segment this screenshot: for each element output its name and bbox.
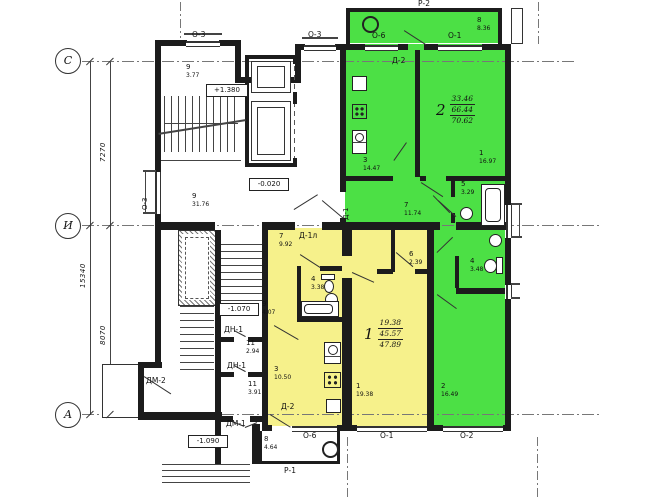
elevation-mid: -1.070 [219, 303, 259, 316]
area-full: 70.62 [450, 116, 475, 126]
dimension-8070: 8070 [99, 295, 107, 345]
room-area: 3.77 [186, 72, 199, 79]
wall [221, 337, 234, 342]
room-number: 5 [461, 181, 474, 189]
elevation-value: +1.380 [214, 86, 240, 94]
window-sill [519, 205, 520, 238]
wall [482, 44, 506, 50]
partition [455, 256, 459, 288]
room-tag-vestibule2: 11 3.91 [248, 381, 261, 396]
room-area: 9.92 [279, 241, 292, 248]
window-o6-top [365, 45, 398, 51]
axis-line-top-left [180, 2, 181, 38]
room-number: 7 [279, 233, 292, 241]
window-o3-left [155, 172, 161, 214]
wall [293, 158, 297, 167]
elevation-lobby: -0.020 [249, 178, 289, 191]
elevator-shaft-wall [245, 55, 297, 59]
label-o6: О-6 [303, 432, 316, 440]
label-o3: О-3 [308, 31, 321, 39]
partition-spine [342, 230, 352, 256]
label-o3-rotated: О-3 [141, 180, 150, 210]
room-number: 1 [356, 383, 373, 391]
wall [340, 44, 346, 192]
stove [324, 372, 341, 388]
room-tag-vestibule1: 11 2.94 [246, 340, 259, 355]
label-o1: О-1 [380, 432, 393, 440]
partition [415, 50, 420, 177]
room-number: 9 [262, 301, 275, 309]
label-dn1: ДН-1 [227, 362, 246, 370]
label-d1l: Д-1л [299, 232, 317, 240]
axis-label-c: С [64, 54, 72, 67]
dimension-15340: 15340 [79, 228, 87, 288]
room-tag-apt2-balcony: 8 8.36 [477, 17, 490, 32]
kitchen-sink-bowl [328, 345, 338, 355]
elevator-shaft-wall [245, 163, 297, 167]
window-right-1 [506, 205, 512, 238]
room-area: 14.47 [363, 165, 380, 172]
axis-line-bottom-1 [347, 437, 348, 497]
axis-bubble-c: С [55, 48, 81, 74]
room-area: 19.38 [356, 391, 373, 398]
apartment-areas: 33.46 66.44 70.62 [450, 94, 475, 126]
window-o1-top [438, 45, 482, 51]
apartment-number: 2 [436, 102, 446, 118]
area-living: 33.46 [450, 94, 475, 105]
room-tag-apt2-bath: 5 3.29 [461, 181, 474, 196]
wall-axis-i [155, 222, 215, 230]
room-tag-apt2-bedroom: 2 16.49 [441, 383, 458, 398]
room-number: 11 [248, 381, 261, 389]
wall [248, 372, 262, 377]
room-tag-apt1-closet: 6 2.39 [409, 251, 422, 266]
apartment-number: 1 [364, 326, 374, 342]
toilet-tank [496, 257, 503, 274]
elevation-value: -1.090 [197, 437, 220, 445]
elevation-value: -0.020 [258, 180, 281, 188]
wall [398, 44, 408, 50]
label-dn1: ДН-1 [224, 326, 243, 334]
washbasin [489, 234, 502, 247]
axis-label-a: А [64, 408, 72, 421]
room-area: 2.39 [409, 259, 422, 266]
stove [352, 104, 367, 119]
balcony-wall [498, 8, 502, 44]
toilet-bowl [324, 280, 334, 293]
bathtub-inner [485, 188, 501, 222]
wall [250, 416, 262, 422]
area-living: 19.38 [378, 318, 403, 329]
wall [293, 55, 297, 64]
kitchen-cabinet [326, 399, 341, 413]
room-tag-corridor: 9 31.76 [192, 193, 209, 208]
bathtub-inner [304, 304, 333, 314]
axis-line-bottom-2 [537, 437, 538, 497]
room-number: 11 [246, 340, 259, 348]
axis-bubble-i: И [55, 213, 81, 239]
axis-label-i: И [63, 219, 73, 232]
area-total: 66.44 [450, 105, 475, 116]
room-number: 8 [477, 17, 490, 25]
door-leaf-d1l [294, 194, 318, 210]
wall-apartment-divider [427, 230, 434, 426]
window-sill [511, 236, 522, 238]
partition [345, 176, 393, 181]
balcony-wall [346, 8, 350, 44]
room-tag-apt2-kitchen: 3 14.47 [363, 157, 380, 172]
dimension-line-outer [90, 62, 91, 415]
label-o1: О-1 [448, 32, 461, 40]
room-number: 9 [186, 64, 199, 72]
room-tag-stair-mid: 9 4.07 [262, 301, 275, 316]
kitchen-sink-divider [325, 356, 340, 357]
room-area: 3.48 [470, 266, 483, 273]
label-d2: Д-2 [392, 57, 405, 65]
label-dm2: ДМ-2 [146, 377, 166, 385]
fridge [352, 76, 367, 91]
label-o2: О-2 [460, 432, 473, 440]
room-area: 3.91 [248, 389, 261, 396]
window-sill [511, 297, 520, 299]
room-area: 16.97 [479, 158, 496, 165]
room-number: 8 [264, 436, 277, 444]
window-sill [511, 203, 522, 205]
staircase-low-steps [180, 306, 214, 374]
room-number: 2 [441, 383, 458, 391]
elevator-car-2-inner [257, 107, 285, 155]
wall [138, 412, 222, 420]
room-tag-apt2-hall: 7 11.74 [404, 202, 421, 217]
wall [155, 214, 161, 364]
room-number: 1 [479, 150, 496, 158]
toilet-bowl [484, 259, 497, 273]
room-number: 4 [470, 258, 483, 266]
area-full: 47.89 [378, 340, 403, 350]
room-tag-stair-top: 9 3.77 [186, 64, 199, 79]
partition [320, 266, 342, 271]
elevator-car-1-inner [257, 66, 285, 88]
axis-bubble-a: А [55, 402, 81, 428]
apartment-areas: 19.38 45.57 47.89 [378, 318, 403, 350]
apartment-2-summary: 2 33.46 66.44 70.62 [436, 94, 475, 126]
partition [377, 269, 393, 274]
room-number: 3 [363, 157, 380, 165]
wall [503, 425, 511, 431]
wall [235, 40, 241, 80]
window-o3-2 [304, 45, 336, 51]
dimension-line-inner [110, 62, 111, 415]
wall [221, 372, 234, 377]
exterior-pier [511, 8, 523, 44]
wall [215, 230, 221, 424]
room-tag-apt2-living: 1 16.97 [479, 150, 496, 165]
floor-plan: С И А 15340 7270 8070 [0, 0, 650, 500]
room-area: 4.07 [262, 309, 275, 316]
apartment-2-bedroom-area [434, 294, 505, 426]
partition [415, 269, 433, 274]
partition [297, 317, 342, 322]
wall [155, 40, 161, 172]
wall [427, 425, 443, 431]
kitchen-sink-divider [353, 142, 366, 143]
elevation-value: -1.070 [228, 305, 251, 313]
partition [451, 181, 455, 197]
room-number: 7 [404, 202, 421, 210]
room-tag-apt1-bath: 4 3.38 [311, 276, 324, 291]
room-tag-apt1-hall: 7 9.92 [279, 233, 292, 248]
door-leaf-d1 [322, 200, 344, 219]
room-number: 9 [192, 193, 209, 201]
room-area: 2.94 [246, 348, 259, 355]
wall [505, 238, 511, 285]
window-o3-1 [186, 41, 220, 47]
washbasin [460, 207, 473, 220]
partition [391, 230, 395, 272]
elevator-shaft-front [294, 57, 295, 165]
wall [505, 299, 511, 430]
room-area: 3.29 [461, 189, 474, 196]
label-d2: Д-2 [281, 403, 294, 411]
wall [293, 92, 297, 104]
room-number: 4 [311, 276, 324, 284]
label-p2: Р-2 [418, 0, 430, 8]
service-shaft-dashed [185, 237, 209, 299]
room-tag-apt1-living: 1 19.38 [356, 383, 373, 398]
partition [456, 288, 505, 294]
entrance-steps [162, 464, 250, 486]
wall [505, 44, 511, 205]
area-total: 45.57 [378, 329, 403, 340]
room-area: 16.49 [441, 391, 458, 398]
room-area: 10.50 [274, 374, 291, 381]
label-o3: О-3 [192, 31, 205, 39]
elevation-entry: -1.090 [188, 435, 228, 448]
porch-outline [102, 364, 142, 418]
wall [262, 425, 272, 431]
window-sill [511, 283, 520, 285]
dimension-7270: 7270 [99, 112, 107, 162]
apartment-1-summary: 1 19.38 45.57 47.89 [364, 318, 403, 350]
staircase-mid-steps [218, 244, 262, 302]
room-area: 11.74 [404, 210, 421, 217]
partition-spine [342, 278, 352, 425]
wall [155, 40, 187, 46]
elevation-stair: +1.380 [206, 84, 248, 97]
balcony-wall [346, 8, 502, 12]
room-number: 6 [409, 251, 422, 259]
room-area: 8.36 [477, 25, 490, 32]
label-o6: О-6 [372, 32, 385, 40]
wall [424, 44, 438, 50]
wall [262, 228, 268, 427]
room-tag-apt1-balcony: 8 4.64 [264, 436, 277, 451]
wall [345, 44, 365, 50]
label-d1-rotated: Д-1 [342, 192, 351, 220]
room-area: 4.64 [264, 444, 277, 451]
room-tag-apt2-wc: 4 3.48 [470, 258, 483, 273]
stair-landing-edge [161, 160, 241, 161]
room-number: 3 [274, 366, 291, 374]
label-p1: Р-1 [284, 467, 296, 475]
axis-line-top-right [538, 2, 539, 44]
label-dm1: ДМ-1 [226, 420, 246, 428]
elevator-shaft-wall [245, 55, 249, 167]
room-tag-apt1-kitchen: 3 10.50 [274, 366, 291, 381]
wall [337, 425, 357, 431]
room-area: 31.76 [192, 201, 209, 208]
balcony-wall [259, 431, 262, 464]
balcony-column [322, 441, 339, 458]
partition [420, 176, 426, 181]
wall [138, 362, 144, 418]
kitchen-sink-bowl [355, 133, 364, 142]
balcony-wall [259, 461, 340, 464]
room-area: 3.38 [311, 284, 324, 291]
